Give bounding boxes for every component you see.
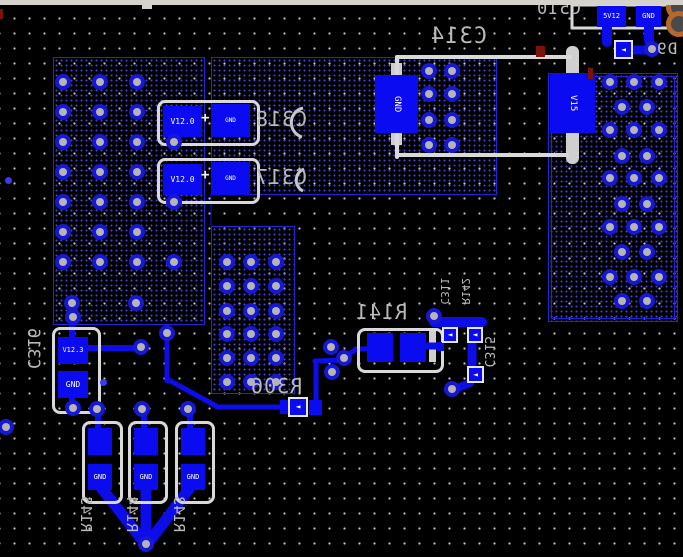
smd-pad[interactable]: GND — [88, 464, 112, 490]
via-hole — [328, 368, 336, 376]
via-hole — [170, 198, 178, 206]
via-hole — [655, 273, 663, 281]
via-hole — [648, 45, 656, 53]
smd-pad[interactable]: GND — [636, 6, 661, 27]
via[interactable] — [92, 194, 108, 210]
smd-pad[interactable]: 5V12 — [597, 6, 626, 27]
via-hole — [272, 282, 280, 290]
via[interactable] — [651, 74, 667, 90]
via-hole — [247, 258, 255, 266]
via-hole — [69, 404, 77, 412]
pad-net-label: GND — [225, 176, 236, 182]
polarity-plus-icon: + — [201, 111, 209, 125]
via-hole — [606, 126, 614, 134]
smd-pad[interactable] — [437, 342, 444, 351]
via-hole — [430, 312, 438, 320]
via-hole — [448, 67, 456, 75]
via[interactable] — [444, 63, 460, 79]
via-hole — [59, 228, 67, 236]
via[interactable] — [602, 74, 618, 90]
smd-pad[interactable]: V12.0 — [163, 106, 202, 137]
pad-net-label: V15 — [568, 95, 577, 111]
via-hole — [137, 343, 145, 351]
blue-dot — [100, 379, 107, 386]
via-hole — [643, 152, 651, 160]
via[interactable] — [268, 278, 284, 294]
smd-pad[interactable]: V15 — [550, 73, 595, 133]
designator-c316[interactable]: C316 — [24, 328, 41, 369]
via-hole — [133, 168, 141, 176]
designator-r145[interactable]: R145 — [78, 496, 93, 532]
designator-r142[interactable]: R142 — [460, 278, 471, 305]
via[interactable] — [92, 164, 108, 180]
via[interactable] — [55, 104, 71, 120]
via[interactable] — [219, 254, 235, 270]
designator-r144[interactable]: R144 — [124, 496, 139, 532]
via-hole — [59, 78, 67, 86]
via-hole — [606, 223, 614, 231]
via[interactable] — [336, 350, 352, 366]
via-hole — [184, 405, 192, 413]
via-hole — [69, 313, 77, 321]
polarity-marker[interactable]: ◄ — [614, 40, 633, 59]
via[interactable] — [602, 170, 618, 186]
via-hole — [272, 330, 280, 338]
arrow-icon: ◄ — [448, 331, 453, 339]
via-hole — [96, 138, 104, 146]
via-hole — [643, 200, 651, 208]
via-hole — [655, 223, 663, 231]
via-hole — [618, 103, 626, 111]
via[interactable] — [243, 326, 259, 342]
via[interactable] — [92, 74, 108, 90]
via[interactable] — [614, 196, 630, 212]
via-hole — [142, 540, 150, 548]
via[interactable] — [268, 350, 284, 366]
via-hole — [618, 152, 626, 160]
via-hole — [643, 103, 651, 111]
via[interactable] — [219, 326, 235, 342]
via[interactable] — [421, 63, 437, 79]
pad-net-label: 5V12 — [603, 13, 620, 20]
via[interactable] — [129, 224, 145, 240]
via[interactable] — [92, 224, 108, 240]
via-hole — [93, 405, 101, 413]
designator-r143[interactable]: R143 — [171, 496, 186, 532]
via-hole — [655, 126, 663, 134]
pad-net-label: GND — [225, 118, 236, 124]
smd-pad[interactable] — [309, 400, 322, 415]
smd-pad[interactable]: V12.0 — [163, 164, 202, 195]
smd-pad[interactable]: GND — [375, 75, 418, 133]
via[interactable] — [128, 295, 144, 311]
designator-c314[interactable]: C314 — [430, 26, 487, 48]
via[interactable] — [129, 194, 145, 210]
via-hole — [96, 198, 104, 206]
via-hole — [630, 78, 638, 86]
via-hole — [425, 116, 433, 124]
pad-net-label: GND — [642, 13, 655, 20]
pcb-editor-canvas: 5V12GNDGNDV15V12.0GNDV12.0GNDV12.3GNDGND… — [0, 0, 683, 557]
via-hole — [133, 258, 141, 266]
via[interactable] — [219, 374, 235, 390]
via-hole — [170, 258, 178, 266]
via-hole — [618, 200, 626, 208]
via-hole — [133, 78, 141, 86]
via[interactable] — [243, 254, 259, 270]
via-hole — [96, 168, 104, 176]
designator-c318[interactable]: C318 — [255, 109, 307, 129]
via[interactable] — [444, 86, 460, 102]
via[interactable] — [426, 308, 442, 324]
via[interactable] — [55, 194, 71, 210]
via[interactable] — [614, 99, 630, 115]
via-hole — [133, 108, 141, 116]
via-hole — [59, 138, 67, 146]
via[interactable] — [133, 339, 149, 355]
via-hole — [618, 248, 626, 256]
via-hole — [68, 299, 76, 307]
via[interactable] — [92, 254, 108, 270]
polarity-marker[interactable]: ◄ — [442, 327, 458, 343]
via-hole — [59, 168, 67, 176]
pad-net-label: GND — [140, 474, 153, 481]
via[interactable] — [129, 134, 145, 150]
blue-dot — [5, 177, 12, 184]
via[interactable] — [639, 99, 655, 115]
smd-pad[interactable] — [400, 333, 426, 362]
via-hole — [606, 78, 614, 86]
via[interactable] — [626, 74, 642, 90]
via-hole — [96, 108, 104, 116]
via-hole — [643, 297, 651, 305]
via[interactable] — [626, 170, 642, 186]
via[interactable] — [129, 104, 145, 120]
designator-c311[interactable]: C311 — [439, 278, 450, 305]
via[interactable] — [138, 536, 154, 552]
via[interactable] — [55, 224, 71, 240]
pad-net-label: V12.0 — [170, 176, 194, 184]
via-hole — [223, 354, 231, 362]
via-hole — [59, 108, 67, 116]
red-mark — [588, 68, 593, 79]
via[interactable] — [219, 350, 235, 366]
via[interactable] — [324, 364, 340, 380]
smd-pad[interactable]: GND — [211, 162, 250, 195]
via[interactable] — [421, 86, 437, 102]
via-hole — [630, 126, 638, 134]
via[interactable] — [651, 122, 667, 138]
via[interactable] — [639, 148, 655, 164]
via-hole — [247, 307, 255, 315]
arrow-icon: ◄ — [296, 403, 301, 411]
via-hole — [448, 116, 456, 124]
smd-pad[interactable] — [367, 333, 393, 362]
via-hole — [132, 299, 140, 307]
via-hole — [223, 378, 231, 386]
via[interactable] — [268, 303, 284, 319]
via-hole — [133, 198, 141, 206]
via-hole — [2, 423, 10, 431]
designator-d9[interactable]: D9 — [656, 41, 677, 57]
designator-c317[interactable]: C317 — [255, 167, 307, 187]
via[interactable] — [89, 401, 105, 417]
via[interactable] — [166, 254, 182, 270]
via[interactable] — [55, 254, 71, 270]
via-hole — [272, 354, 280, 362]
via[interactable] — [639, 293, 655, 309]
via[interactable] — [639, 244, 655, 260]
via-hole — [425, 67, 433, 75]
via[interactable] — [626, 219, 642, 235]
via-hole — [327, 343, 335, 351]
via-hole — [96, 258, 104, 266]
title-bar-tab — [142, 4, 152, 9]
arrow-icon: ◄ — [473, 371, 478, 379]
smd-pad[interactable] — [134, 428, 158, 455]
via[interactable] — [602, 269, 618, 285]
via-hole — [133, 228, 141, 236]
via-hole — [425, 90, 433, 98]
via[interactable] — [444, 137, 460, 153]
via[interactable] — [159, 325, 175, 341]
via-hole — [606, 174, 614, 182]
pad-net-label: GND — [392, 96, 401, 112]
via[interactable] — [651, 219, 667, 235]
via[interactable] — [65, 309, 81, 325]
via-hole — [96, 228, 104, 236]
pad-net-label: V12.0 — [170, 118, 194, 126]
pad-net-label: GND — [187, 474, 200, 481]
via[interactable] — [243, 350, 259, 366]
via[interactable] — [626, 269, 642, 285]
via[interactable] — [268, 326, 284, 342]
via[interactable] — [219, 303, 235, 319]
smd-pad[interactable]: GND — [134, 464, 158, 490]
red-mark — [536, 46, 545, 57]
polarity-marker[interactable]: ◄ — [288, 397, 308, 417]
via-hole — [138, 405, 146, 413]
via[interactable] — [444, 112, 460, 128]
via[interactable] — [92, 134, 108, 150]
via-hole — [606, 273, 614, 281]
via-hole — [425, 141, 433, 149]
via[interactable] — [651, 269, 667, 285]
via-hole — [247, 330, 255, 338]
via[interactable] — [134, 401, 150, 417]
via[interactable] — [243, 278, 259, 294]
via[interactable] — [129, 164, 145, 180]
pad-net-label: V12.3 — [62, 347, 83, 354]
via-hole — [448, 385, 456, 393]
designator-r306[interactable]: R306 — [250, 376, 302, 396]
smd-pad[interactable]: GND — [58, 371, 88, 398]
smd-pad[interactable] — [181, 428, 205, 455]
via[interactable] — [614, 293, 630, 309]
via-hole — [247, 354, 255, 362]
smd-pad[interactable] — [88, 428, 112, 455]
via-hole — [272, 307, 280, 315]
via-hole — [630, 273, 638, 281]
pad-net-label: GND — [94, 474, 107, 481]
via[interactable] — [219, 278, 235, 294]
via[interactable] — [243, 303, 259, 319]
via-hole — [170, 138, 178, 146]
via[interactable] — [268, 254, 284, 270]
smd-pad[interactable]: GND — [181, 464, 205, 490]
via-hole — [655, 174, 663, 182]
designator-r141[interactable]: R141 — [355, 302, 407, 322]
via-hole — [223, 282, 231, 290]
via[interactable] — [55, 164, 71, 180]
via[interactable] — [651, 170, 667, 186]
arrow-icon: ◄ — [473, 331, 478, 339]
via-hole — [96, 78, 104, 86]
via-hole — [655, 78, 663, 86]
via[interactable] — [92, 104, 108, 120]
via-hole — [340, 354, 348, 362]
via-hole — [59, 198, 67, 206]
via-hole — [448, 90, 456, 98]
via-hole — [448, 141, 456, 149]
via[interactable] — [55, 134, 71, 150]
polarity-marker[interactable]: ◄ — [467, 366, 484, 383]
via[interactable] — [166, 194, 182, 210]
via-hole — [223, 307, 231, 315]
via[interactable] — [180, 401, 196, 417]
via-hole — [643, 248, 651, 256]
designator-c315[interactable]: C315 — [482, 336, 495, 367]
polarity-plus-icon: + — [201, 168, 209, 182]
via-hole — [163, 329, 171, 337]
via-hole — [223, 258, 231, 266]
arrow-icon: ◄ — [621, 46, 626, 54]
via-hole — [223, 330, 231, 338]
via[interactable] — [421, 137, 437, 153]
via-hole — [247, 282, 255, 290]
via-hole — [133, 138, 141, 146]
smd-pad[interactable]: V12.3 — [58, 337, 88, 364]
via[interactable] — [614, 244, 630, 260]
via[interactable] — [602, 122, 618, 138]
smd-pad[interactable]: GND — [211, 104, 250, 137]
via[interactable] — [444, 381, 460, 397]
red-mark — [0, 9, 3, 19]
via[interactable] — [626, 122, 642, 138]
via-hole — [630, 174, 638, 182]
via[interactable] — [55, 74, 71, 90]
via-hole — [272, 258, 280, 266]
via-hole — [630, 223, 638, 231]
via[interactable] — [421, 112, 437, 128]
via[interactable] — [614, 148, 630, 164]
via-hole — [59, 258, 67, 266]
via[interactable] — [602, 219, 618, 235]
via[interactable] — [639, 196, 655, 212]
title-bar — [0, 0, 683, 5]
via[interactable] — [129, 254, 145, 270]
via[interactable] — [166, 134, 182, 150]
via-hole — [618, 297, 626, 305]
via[interactable] — [129, 74, 145, 90]
via[interactable] — [65, 400, 81, 416]
pad-net-label: GND — [66, 381, 80, 389]
